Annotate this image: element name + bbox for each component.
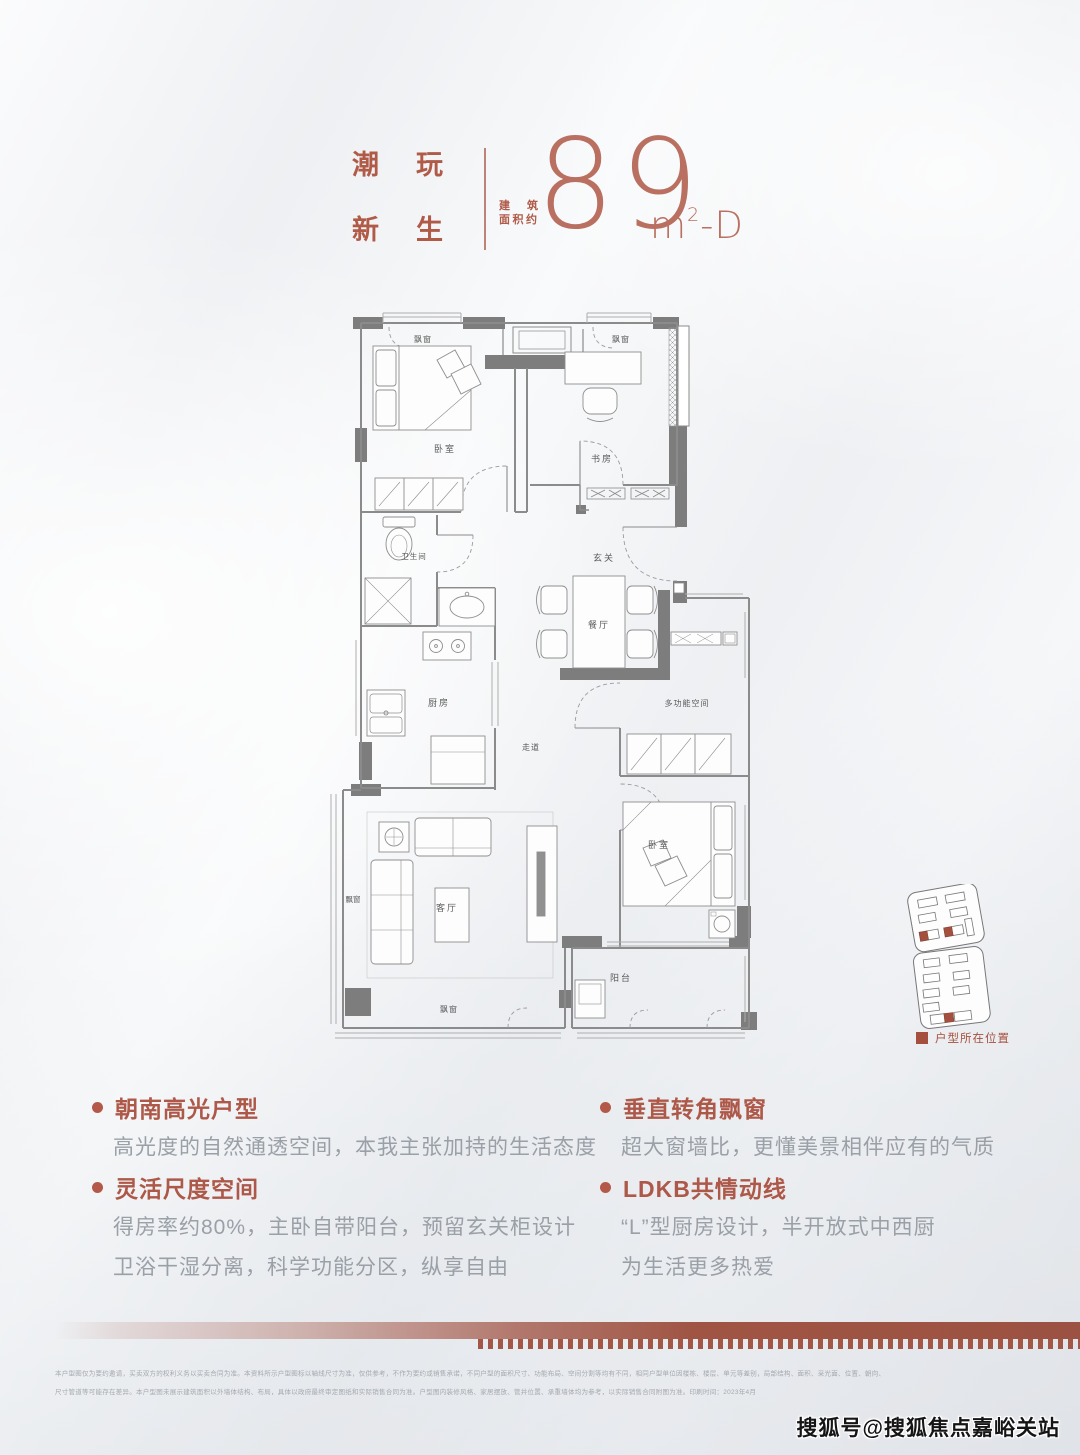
room-label-bay-window: 飘窗 (414, 334, 432, 344)
room-label-study: 书房 (591, 453, 613, 464)
building-block-lower (912, 946, 991, 1029)
unit-suffix: -D (700, 204, 744, 247)
page-title-line1: 潮玩 (352, 152, 480, 179)
feature-text: 为生活更多热爱 (621, 1251, 775, 1281)
room-label-bay-window: 飘窗 (346, 894, 361, 904)
column (674, 583, 684, 593)
room-label-bedroom-top: 卧室 (434, 443, 456, 454)
feature-text: 超大窗墙比，更懂美景相伴应有的气质 (621, 1131, 995, 1161)
site-location-map (893, 884, 997, 1029)
decorative-strip (55, 1322, 1080, 1339)
feature-title: 朝南高光户型 (115, 1090, 259, 1124)
site-map-svg (893, 884, 997, 1029)
feature-left-1: 朝南高光户型 (92, 1090, 259, 1124)
room-label-bathroom: 卫生间 (401, 551, 427, 561)
bullet-icon (92, 1182, 103, 1193)
disclaimer-line2: 尺寸管道等可能存在差异。本户型图未展示建筑面积以外墙体结构、布局，具体以政府最终… (55, 1383, 1035, 1402)
unit-sup: 2 (687, 204, 700, 226)
legend-square-icon (916, 1032, 928, 1044)
legend-label: 户型所在位置 (935, 1030, 1010, 1046)
feature-text: 得房率约80%，主卧自带阳台，预留玄关柜设计 (113, 1211, 576, 1241)
bay-column (678, 326, 689, 426)
disclaimer: 本户型图仅为要约邀请，买卖双方的权利义务以买卖合同为准。本资料所示户型图标以轴线… (55, 1364, 1035, 1401)
room-label-dining: 餐厅 (588, 619, 610, 630)
highlighted-unit (919, 931, 928, 941)
room-label-bay-window: 飘窗 (440, 1004, 458, 1014)
highlighted-unit (944, 1013, 954, 1023)
feature-right-2: LDKB共情动线 (600, 1170, 787, 1204)
bullet-icon (600, 1102, 611, 1113)
room-label-corridor: 走道 (522, 742, 540, 752)
feature-left-2: 灵活尺度空间 (92, 1170, 259, 1204)
feature-text: 卫浴干湿分离，科学功能分区，纵享自由 (113, 1251, 509, 1281)
disclaimer-line1: 本户型图仅为要约邀请，买卖双方的权利义务以买卖合同为准。本资料所示户型图标以轴线… (55, 1364, 1035, 1383)
bullet-icon (600, 1182, 611, 1193)
unit-m: m (650, 204, 687, 247)
highlighted-unit (944, 927, 953, 937)
room-label-foyer: 玄关 (593, 552, 615, 563)
poster-page: 潮玩 新生 建筑 面积约 89 m2-D (0, 0, 1080, 1455)
bullet-icon (92, 1102, 103, 1113)
title-divider (484, 148, 486, 250)
room-label-bay-window: 飘窗 (612, 334, 630, 344)
decorative-strip-teeth (478, 1339, 1080, 1349)
area-unit: m2-D (650, 204, 744, 247)
shoe-cabinet (587, 488, 669, 499)
room-label-kitchen: 厨房 (428, 697, 450, 708)
watermark: 搜狐号@搜狐焦点嘉峪关站 (797, 1412, 1060, 1442)
page-title-line2: 新生 (352, 217, 480, 244)
room-label-bedroom-master: 卧室 (648, 839, 670, 850)
room-label-multi-room: 多功能空间 (665, 698, 710, 708)
corner-bay-window (669, 328, 678, 426)
map-legend: 户型所在位置 (916, 1030, 1010, 1046)
feature-text: “L”型厨房设计，半开放式中西厨 (621, 1211, 936, 1241)
feature-title: 垂直转角飘窗 (623, 1090, 767, 1124)
floorplan: 飘窗 飘窗 卧室 书房 卫生间 玄关 餐厅 厨房 走道 多功能空间 卧室 阳台 … (325, 300, 765, 1050)
room-label-balcony: 阳台 (610, 972, 632, 983)
page-title: 潮玩 新生 (352, 152, 480, 244)
ac-niche (503, 327, 583, 355)
feature-right-1: 垂直转角飘窗 (600, 1090, 767, 1124)
feature-text: 高光度的自然通透空间，本我主张加持的生活态度 (113, 1131, 597, 1161)
feature-title: LDKB共情动线 (623, 1170, 787, 1204)
feature-title: 灵活尺度空间 (115, 1170, 259, 1204)
building-block-upper (906, 884, 985, 953)
room-label-living: 客厅 (436, 902, 458, 913)
floorplan-svg: 飘窗 飘窗 卧室 书房 卫生间 玄关 餐厅 厨房 走道 多功能空间 卧室 阳台 … (325, 300, 765, 1050)
